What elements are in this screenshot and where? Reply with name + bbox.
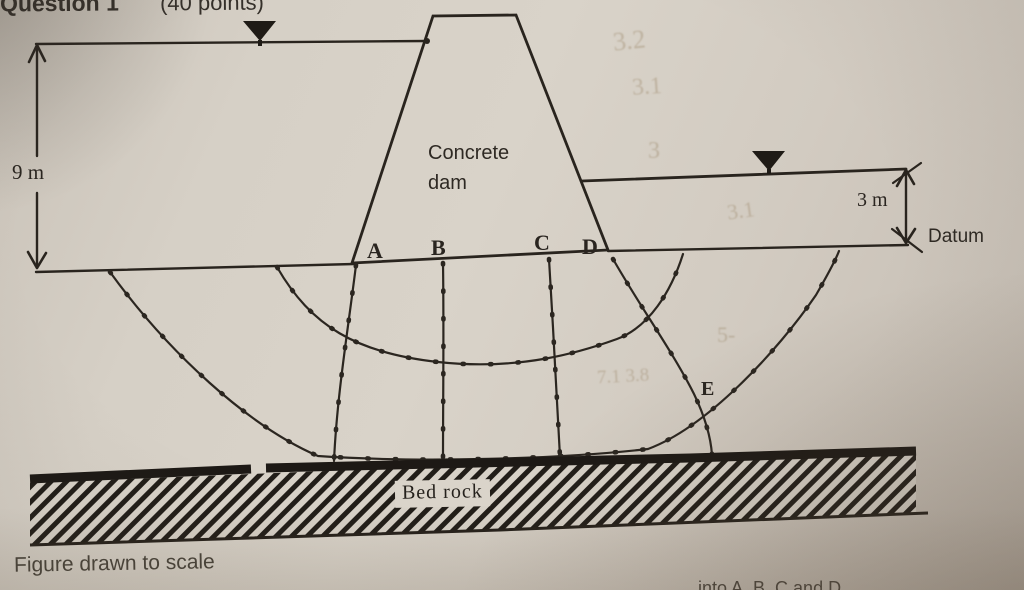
ghost-mark: 3 — [648, 138, 660, 165]
ghost-mark: 3.1 — [725, 196, 756, 226]
tailwater-line — [582, 169, 906, 181]
photographed-exam-page: Question 1 (40 points) 9 m 3 m Datum Con… — [0, 0, 1024, 590]
cutoff-bottom-text: into A, B, C and D — [698, 578, 841, 590]
figure-caption: Figure drawn to scale — [14, 550, 215, 578]
flow-line-inner — [277, 254, 683, 364]
flow-line-outer — [110, 251, 839, 460]
ghost-mark: 7.1 3.8 — [596, 365, 649, 390]
bedrock-label: Bed rock — [395, 479, 490, 508]
ghost-mark: 3.2 — [612, 24, 647, 57]
upstream-water-line — [36, 41, 427, 44]
point-E-label: E — [701, 378, 714, 401]
ghost-mark: 5- — [717, 322, 735, 348]
upstream-ground-line — [36, 264, 354, 272]
concrete-dam-label: Concrete dam — [428, 138, 524, 198]
upstream-depth-label: 9 m — [12, 160, 44, 185]
tailwater-level-icon — [752, 151, 785, 171]
equipotential-line-toe-E — [613, 259, 712, 455]
tailwater-ground-line — [608, 245, 908, 251]
question-points: (40 points) — [160, 0, 264, 16]
dam-seepage-flownet-figure — [0, 0, 1024, 590]
ghost-mark: 3.1 — [631, 73, 663, 102]
upstream-water-level-icon-stem — [258, 40, 262, 46]
question-title: Question 1 — [0, 0, 119, 18]
downstream-dimension-3m — [892, 163, 922, 252]
datum-label: Datum — [928, 226, 984, 248]
downstream-depth-label: 3 m — [857, 189, 888, 212]
point-B-label: B — [431, 235, 446, 261]
tailwater-level-icon-stem — [767, 169, 771, 174]
upstream-dimension-9m — [28, 45, 46, 268]
point-D-label: D — [582, 234, 598, 260]
upstream-water-level-icon — [243, 21, 276, 41]
flownet-tick-dots — [110, 251, 839, 461]
point-C-label: C — [534, 230, 550, 256]
point-A-label: A — [367, 238, 383, 264]
waterline-dam-contact-blot — [424, 38, 430, 44]
